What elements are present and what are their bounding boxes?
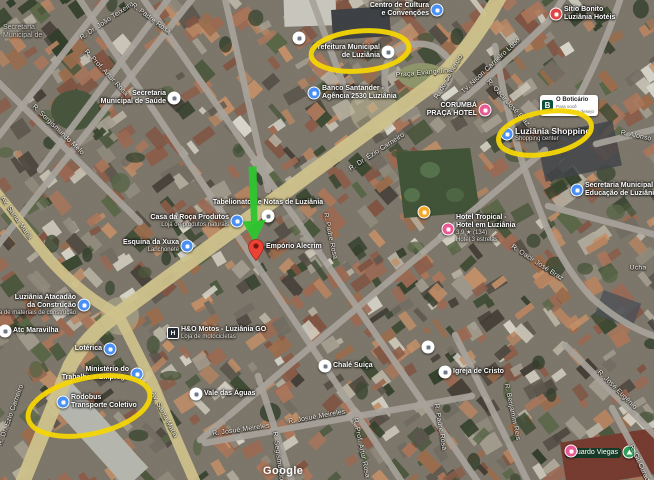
annotation-ellipse-rodobus-terminal: [23, 366, 156, 447]
google-watermark: Google: [263, 465, 303, 477]
annotation-ellipse-prefeitura-municipal: [309, 27, 410, 75]
annotation-layer: [0, 0, 654, 480]
destination-pin[interactable]: [249, 240, 264, 261]
annotation-arrow: [243, 166, 267, 243]
satellite-map-view[interactable]: SecretariaMunicipal deSecretariaMunicipa…: [0, 0, 654, 480]
annotation-ellipse-luziania-shopping: [495, 104, 595, 162]
